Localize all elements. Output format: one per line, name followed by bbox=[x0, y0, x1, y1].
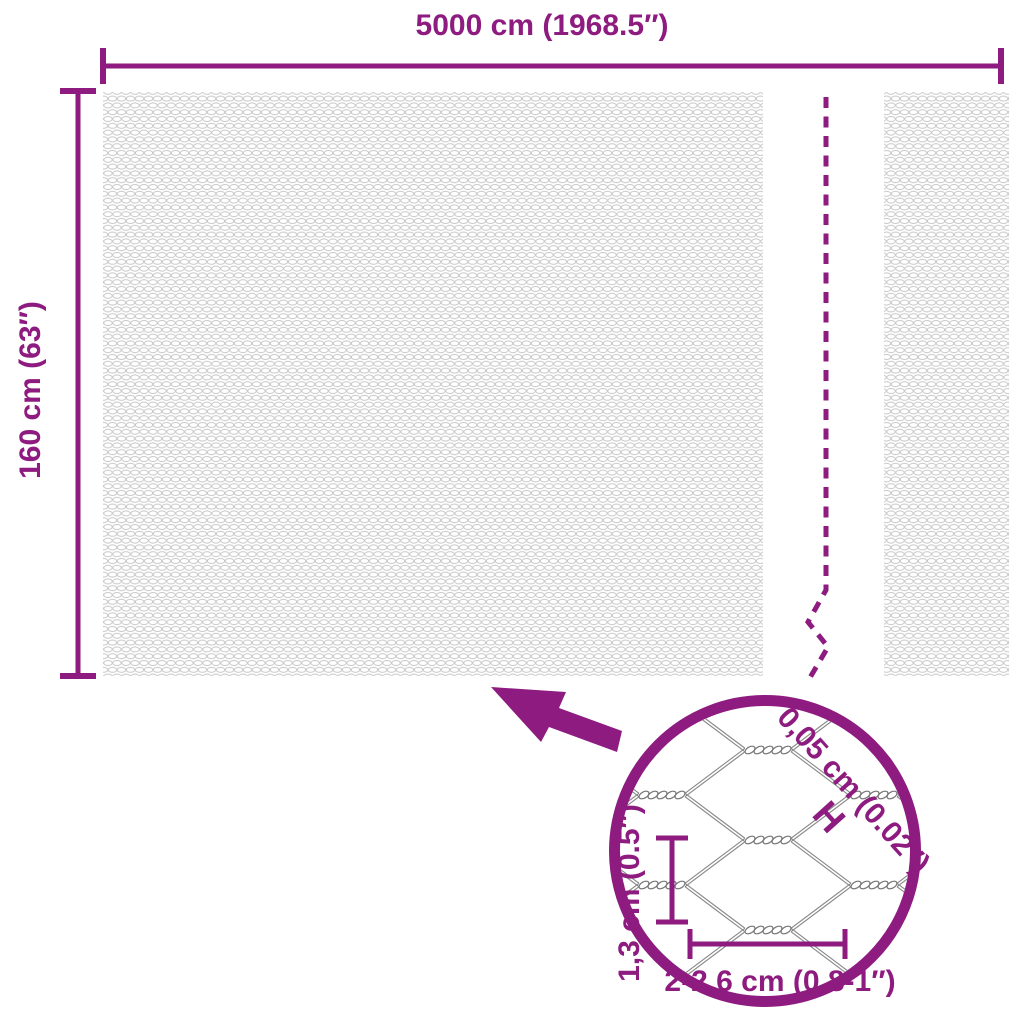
zoom-arrow-icon bbox=[491, 687, 622, 752]
roll-height-label: 160 cm (63″) bbox=[16, 301, 46, 479]
cell-width-label: 2-2,6 cm (0.8-1″) bbox=[664, 967, 895, 997]
width-dimension-line bbox=[103, 48, 1001, 84]
mesh-panel-right bbox=[884, 92, 1009, 676]
break-line bbox=[808, 97, 828, 681]
roll-width-label: 5000 cm (1968.5″) bbox=[416, 11, 669, 41]
cell-height-label: 1,3 cm (0.5″) bbox=[615, 804, 645, 982]
mesh-panel-left bbox=[103, 92, 763, 676]
height-dimension-line bbox=[60, 91, 96, 676]
product-dimension-diagram: 5000 cm (1968.5″) 160 cm (63″) 0,05 cm (… bbox=[0, 0, 1024, 1024]
diagram-graphics bbox=[0, 0, 1024, 1024]
